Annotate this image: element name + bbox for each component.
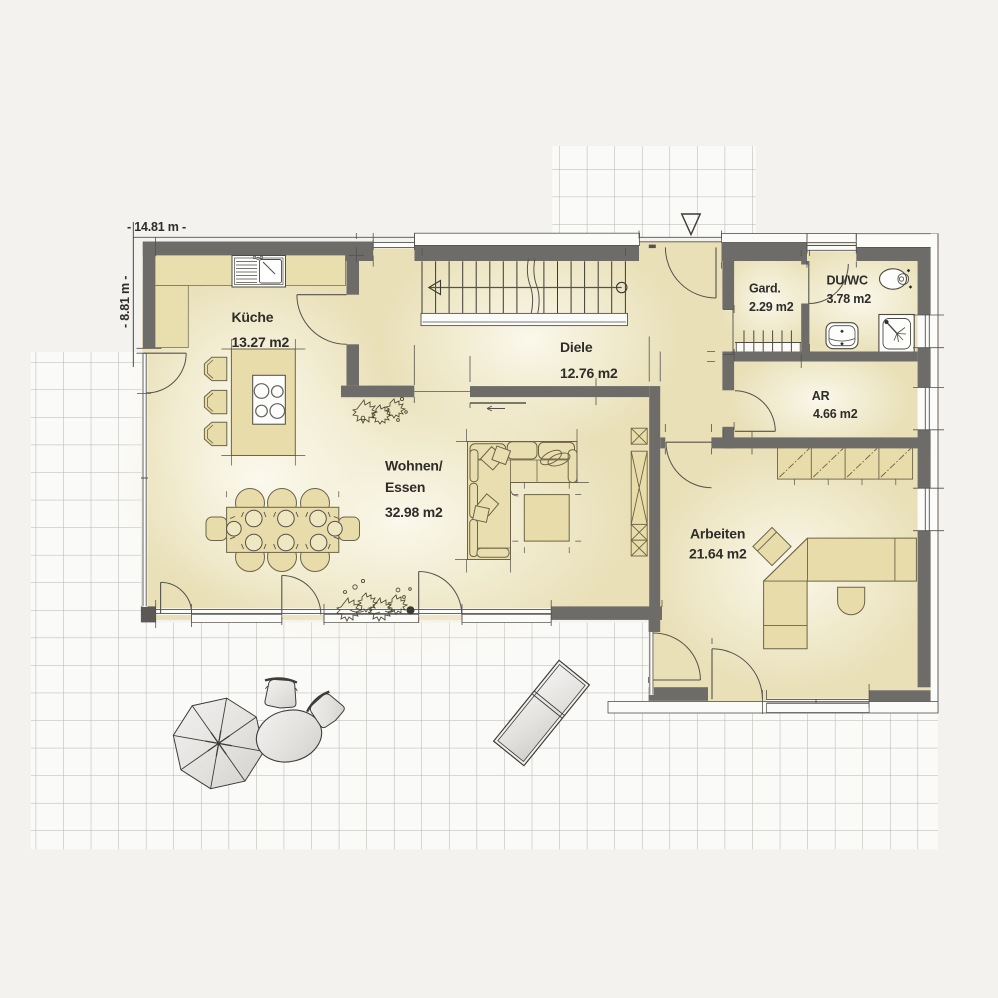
svg-text:Essen: Essen bbox=[385, 479, 425, 495]
svg-text:12.76 m2: 12.76 m2 bbox=[560, 365, 618, 381]
svg-text:2.29 m2: 2.29 m2 bbox=[749, 300, 794, 314]
svg-text:Diele: Diele bbox=[560, 339, 593, 355]
svg-text:32.98 m2: 32.98 m2 bbox=[385, 504, 443, 520]
svg-text:3.78 m2: 3.78 m2 bbox=[827, 292, 872, 306]
svg-text:Gard.: Gard. bbox=[749, 282, 781, 296]
svg-text:Wohnen/: Wohnen/ bbox=[385, 458, 443, 474]
svg-text:DU/WC: DU/WC bbox=[827, 274, 869, 288]
svg-text:Arbeiten: Arbeiten bbox=[690, 526, 745, 542]
svg-text:- 14.81 m -: - 14.81 m - bbox=[127, 220, 186, 234]
svg-text:21.64 m2: 21.64 m2 bbox=[689, 546, 747, 562]
svg-text:Küche: Küche bbox=[232, 309, 274, 325]
svg-text:AR: AR bbox=[812, 389, 830, 403]
svg-text:4.66 m2: 4.66 m2 bbox=[813, 407, 858, 421]
svg-text:- 8.81 m -: - 8.81 m - bbox=[118, 276, 132, 328]
svg-text:13.27 m2: 13.27 m2 bbox=[232, 334, 290, 350]
